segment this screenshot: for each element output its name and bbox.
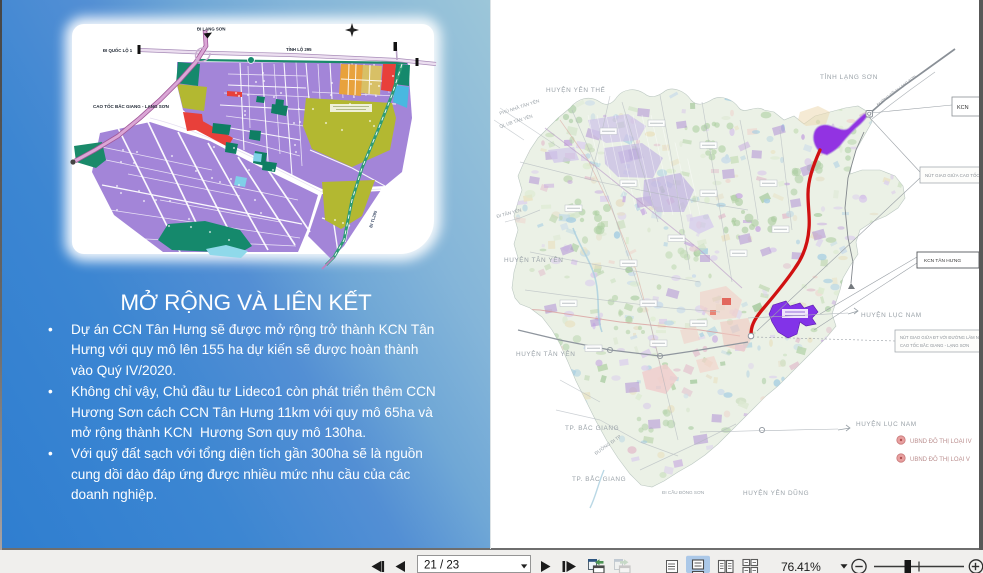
svg-text:21 / 23: 21 / 23 [424, 560, 459, 572]
svg-text:ĐI LẠNG SƠN: ĐI LẠNG SƠN [197, 27, 226, 32]
svg-text:HUYỆN LỤC NAM: HUYỆN LỤC NAM [856, 419, 917, 428]
svg-text:TP. BẮC GIANG: TP. BẮC GIANG [572, 474, 626, 483]
svg-text:HUYỆN LỤC NAM: HUYỆN LỤC NAM [861, 310, 922, 319]
svg-text:ĐI QUỐC LỘ 1: ĐI QUỐC LỘ 1 [103, 48, 133, 53]
svg-text:ĐƯỜNG TỐI ĐI LẠNG SƠN: ĐƯỜNG TỐI ĐI LẠNG SƠN [876, 74, 918, 107]
svg-text:ĐI CẦU ĐÓNG SƠN: ĐI CẦU ĐÓNG SƠN [662, 489, 704, 495]
svg-text:KCN TÂN HƯNG: KCN TÂN HƯNG [924, 257, 961, 264]
svg-text:HUYỆN TÂN YÊN: HUYỆN TÂN YÊN [504, 255, 563, 264]
svg-text:HUYỆN YÊN DŨNG: HUYỆN YÊN DŨNG [743, 488, 809, 497]
svg-text:NÚT GIAO GIỮA CAO TỐC: NÚT GIAO GIỮA CAO TỐC [925, 173, 979, 178]
svg-text:CAO TỐC BẮC GIANG - LẠNG SƠN: CAO TỐC BẮC GIANG - LẠNG SƠN [900, 343, 969, 348]
svg-text:76.41%: 76.41% [781, 560, 821, 573]
svg-text:TỈNH LẠNG SƠN: TỈNH LẠNG SƠN [820, 72, 878, 81]
svg-text:KCN: KCN [957, 105, 969, 111]
svg-text:CAO TỐC BẮC GIANG - LẠNG SƠN: CAO TỐC BẮC GIANG - LẠNG SƠN [93, 102, 169, 109]
svg-text:HUYỆN YÊN THẾ: HUYỆN YÊN THẾ [546, 84, 605, 94]
svg-text:TỈNH LỘ 295: TỈNH LỘ 295 [286, 47, 312, 52]
svg-text:ĐI TL295: ĐI TL295 [368, 209, 378, 228]
svg-text:TP. BẮC GIANG: TP. BẮC GIANG [565, 423, 619, 432]
svg-text:PHÚ NHÃ TÂN YÊN: PHÚ NHÃ TÂN YÊN [498, 96, 540, 116]
svg-text:UBND ĐÔ THỊ LOẠI V: UBND ĐÔ THỊ LOẠI V [910, 456, 970, 463]
svg-text:UBND ĐÔ THỊ LOẠI IV: UBND ĐÔ THỊ LOẠI IV [910, 438, 972, 445]
svg-text:HUYỆN TÂN YÊN: HUYỆN TÂN YÊN [516, 349, 575, 358]
svg-text:NÚT GIAO GIỮA ĐT VỚI ĐƯỜNG LÂM: NÚT GIAO GIỮA ĐT VỚI ĐƯỜNG LÂM NỐI [900, 335, 979, 340]
